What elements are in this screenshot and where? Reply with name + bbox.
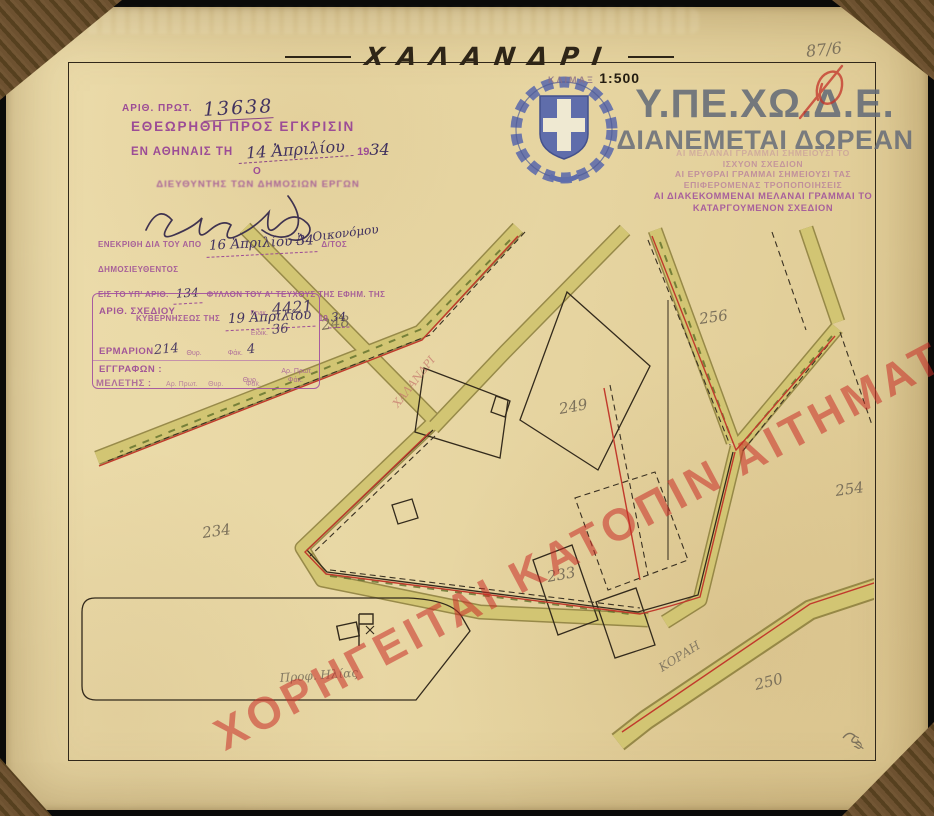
scanned-map-document: 248 249 256 254 234 233 250 ΧΑΛΑΝΔΡΙ ΚΟΡ… — [0, 0, 934, 816]
study-folder-label: Φάκ. — [246, 381, 261, 388]
review-place-prefix: ΕΝ ΑΘΗΝΑΙΣ ΤΗ — [131, 146, 233, 158]
parcel-234: 234 — [200, 520, 232, 542]
cabinet-label: ΕΡΜΑΡΙΟΝ — [99, 346, 154, 357]
review-stamp-dateline: ΕΝ ΑΘΗΝΑΙΣ ΤΗ 14 Ἀπριλίου 1934 — [131, 140, 390, 160]
plan-number-label: ΑΡΙΘ. ΣΧΕΔΙΟΥ — [99, 306, 250, 317]
study-row: ΜΕΛΕΤΗΣ : Αρ. Πρωτ. Θυρ. Φάκ. — [96, 373, 261, 391]
agency-block: Υ.ΠΕ.ΧΩ.Δ.Ε. ΔΙΑΝΕΜΕΤΑΙ ΔΩΡΕΑΝ — [612, 84, 918, 154]
documents-folder-label: Φάκ. — [288, 377, 303, 384]
legend-stamp: ΑΙ ΜΕΛΑΝΑΙ ΓΡΑΜΜΑΙ ΣΗΜΕΙΟΥΣΙ ΤΟ ΙΣΧΥΟΝ Σ… — [608, 148, 918, 214]
title-row: ΧΑΛΑΝΔΡΙ — [285, 42, 674, 71]
scale-value: 1:500 — [599, 70, 640, 86]
parcel-250: 250 — [752, 669, 786, 694]
embossed-header-strip — [60, 8, 700, 34]
cabinet-folder-value: 4 — [247, 342, 257, 358]
protocol-number: 13638 — [203, 95, 275, 122]
parcel-249: 249 — [557, 395, 590, 418]
review-article-o: Ο — [253, 166, 261, 177]
legend-line: ΚΑΤΑΡΓΟΥΜΕΝΟΝ ΣΧΕΔΙΟΝ — [608, 203, 918, 215]
legend-line: ΑΙ ΔΙΑΚΕΚΟΜΜΕΝΑΙ ΜΕΛΑΝΑΙ ΓΡΑΜΜΑΙ ΤΟ — [608, 191, 918, 203]
study-label: ΜΕΛΕΤΗΣ : — [96, 378, 152, 389]
plan-general-label: Γενικ. — [250, 310, 267, 317]
approval-l3-year: 34 — [328, 308, 350, 329]
protocol-number-stamp: ΑΡΙΘ. ΠΡΩΤ. 13638 — [122, 97, 274, 120]
legend-line: ΙΣΧΥΟΝ ΣΧΕΔΙΟΝ — [608, 159, 918, 170]
review-year-handwritten: 34 — [369, 140, 389, 159]
archive-row-plan-number: ΑΡΙΘ. ΣΧΕΔΙΟΥ Γενικ. 4421 — [99, 298, 313, 317]
page-title: ΧΑΛΑΝΔΡΙ — [363, 42, 616, 71]
scale-row: ΚΛΙΜΑΞ 1:500 — [548, 70, 640, 88]
review-year-printed: 19 — [357, 146, 369, 158]
title-rule-left — [285, 56, 351, 58]
free-distribution-label: ΔΙΑΝΕΜΕΤΑΙ ΔΩΡΕΑΝ — [612, 126, 918, 154]
study-door-label: Θυρ. — [208, 381, 223, 388]
plan-special-label: Ειδικ. — [251, 330, 268, 337]
plan-general-value: 4421 — [272, 296, 314, 318]
approval-l3-year-printed: 19 — [319, 314, 329, 323]
cabinet-door-label: Θυρ. — [187, 350, 202, 357]
protocol-label: ΑΡΙΘ. ΠΡΩΤ. — [122, 103, 193, 114]
agency-acronym: Υ.ΠΕ.ΧΩ.Δ.Ε. — [612, 84, 918, 126]
review-date-handwritten: 14 Ἀπριλίου — [237, 136, 353, 164]
legend-line: ΑΙ ΕΡΥΘΡΑΙ ΓΡΑΜΜΑΙ ΣΗΜΕΙΟΥΣΙ ΤΑΣ — [608, 169, 918, 180]
approval-l1-prefix: ΕΝΕΚΡΙΘΗ ΔΙΑ ΤΟΥ ΑΠΟ — [98, 240, 201, 249]
archive-divider — [93, 360, 319, 361]
parcel-256: 256 — [697, 306, 729, 328]
street-name-korai: ΚΟΡΑΗ — [655, 638, 703, 675]
coat-of-arms-icon — [504, 70, 624, 190]
cabinet-folder-label: Φάκ. — [228, 350, 243, 357]
archive-row-cabinet: ΕΡΜΑΡΙΟΝ 214 Θυρ. Φάκ. 4 — [99, 339, 313, 357]
legend-line: ΕΠΙΦΕΡΟΜΕΝΑΣ ΤΡΟΠΟΠΟΙΗΣΕΙΣ — [608, 180, 918, 191]
plan-special-value: 36 — [272, 321, 290, 337]
cabinet-value: 214 — [153, 341, 179, 358]
study-protocol-label: Αρ. Πρωτ. — [166, 381, 198, 388]
review-stamp-heading: ΕΘΕΩΡΗΘΗ ΠΡΟΣ ΕΓΚΡΙΣΙΝ — [131, 119, 355, 134]
title-rule-right — [628, 56, 674, 58]
documents-protocol-label: Αρ. Πρωτ. — [281, 368, 313, 375]
parcel-254: 254 — [833, 478, 865, 500]
pencil-corner-note: 87/6 — [805, 38, 843, 61]
archive-row-special: Ειδικ. 36 — [99, 319, 313, 337]
scale-word: ΚΛΙΜΑΞ — [548, 75, 595, 85]
